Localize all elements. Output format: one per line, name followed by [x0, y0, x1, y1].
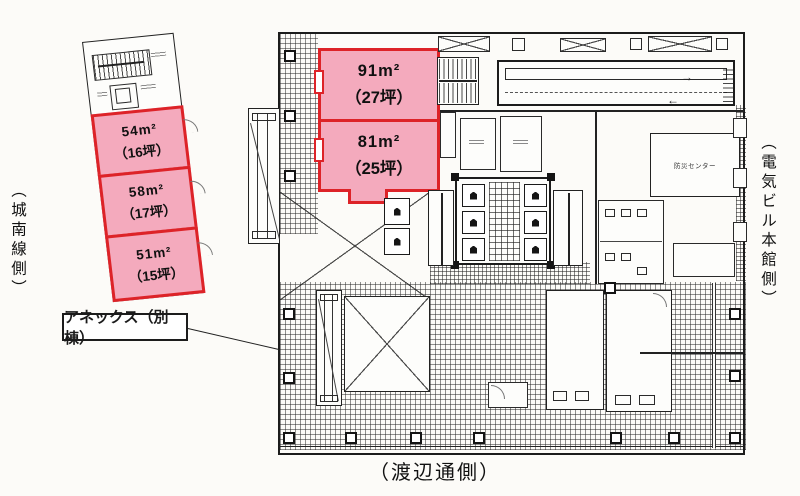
room-area-label: 54m²	[121, 121, 158, 139]
window-bay-notch	[314, 70, 324, 94]
west-core-staircase	[428, 190, 454, 266]
column-marker	[451, 173, 459, 181]
plaza-escalator	[316, 290, 342, 406]
elevator-cab	[462, 238, 485, 261]
side-escalator	[248, 108, 280, 244]
column-marker	[668, 432, 680, 444]
walkway-line	[640, 352, 744, 354]
flow-arrow-left-icon: ←	[667, 94, 679, 106]
plaza-room-a	[546, 290, 604, 410]
column-marker	[284, 50, 296, 62]
tiny-label-mark	[97, 91, 108, 97]
atrium-void	[344, 296, 430, 392]
door-arc	[190, 179, 206, 194]
floorplan-canvas: 54m² （16坪） 58m² （17坪） 51m² （15坪） アネックス（別…	[0, 0, 800, 496]
east-staircase	[673, 243, 735, 277]
column-marker	[610, 432, 622, 444]
restroom-block	[598, 200, 664, 284]
window-bay-notch	[314, 138, 324, 162]
annex-label-text: アネックス（別棟）	[64, 306, 186, 348]
wall-line	[595, 110, 597, 284]
plaza-room-b	[606, 290, 672, 412]
elevator-lobby	[489, 182, 520, 261]
side-label-jonan: （城南線側）	[6, 182, 28, 352]
service-room	[500, 116, 542, 172]
annex-elevator	[109, 83, 139, 111]
louver-grille	[723, 66, 733, 102]
room-bottom-tab	[348, 189, 388, 204]
service-elevator	[384, 198, 410, 225]
rooftop-unit	[438, 36, 490, 52]
expansion-joint	[712, 283, 716, 448]
tiny-label-mark	[140, 83, 156, 89]
elevator-cab	[462, 211, 485, 234]
column-marker	[729, 432, 741, 444]
elevator-cab	[462, 184, 485, 207]
tiny-label-mark	[151, 51, 167, 57]
rooftop-unit	[560, 38, 606, 52]
side-label-watanabe-dori: （渡辺通側）	[335, 456, 535, 485]
column-marker	[729, 308, 741, 320]
elevator-core	[455, 177, 551, 265]
column-marker	[283, 372, 295, 384]
side-label-denki-building: （電気ビル本館側）	[756, 134, 778, 354]
column-marker	[284, 110, 296, 122]
door-arc	[183, 118, 199, 133]
east-core-staircase	[553, 190, 583, 266]
annex-building: 54m² （16坪） 58m² （17坪） 51m² （15坪）	[82, 33, 204, 302]
column-marker	[410, 432, 422, 444]
shaft-box	[512, 38, 525, 51]
elevator-cab	[524, 184, 547, 207]
elevator-cab	[524, 238, 547, 261]
room-tsubo-label: （17坪）	[120, 198, 178, 223]
column-marker	[473, 432, 485, 444]
flow-arrow-right-icon: →	[681, 71, 693, 83]
room-area-label: 51m²	[135, 244, 172, 262]
shaft-box	[733, 222, 747, 242]
column-marker	[283, 308, 295, 320]
room-tsubo-label: （16坪）	[113, 138, 171, 163]
column-marker	[604, 282, 616, 294]
shaft-box	[733, 118, 747, 138]
machine-room: → ←	[497, 60, 735, 106]
column-marker	[729, 370, 741, 382]
shaft-box	[716, 38, 728, 50]
wall-line	[440, 110, 744, 112]
column-marker	[547, 173, 555, 181]
shaft-box	[630, 38, 642, 50]
service-room	[460, 118, 496, 170]
annex-leader-line	[188, 328, 280, 350]
column-marker	[284, 170, 296, 182]
annex-label: アネックス（別棟）	[62, 313, 188, 341]
main-room-81: 81m² （25坪）	[318, 119, 440, 192]
plaza-kiosk	[488, 382, 528, 408]
north-staircase	[437, 57, 479, 105]
rooftop-unit	[648, 36, 712, 52]
elevator-cab	[524, 211, 547, 234]
door-arc	[197, 241, 213, 256]
plaza-edge-line	[279, 446, 744, 447]
annex-room-51: 51m² （15坪）	[105, 226, 205, 302]
service-elevator	[384, 228, 410, 255]
room-tsubo-label: （15坪）	[127, 260, 185, 285]
room-area-label: 58m²	[128, 182, 165, 200]
room-tsubo-label: （27坪）	[345, 84, 413, 108]
disaster-center-room: 防災センター	[650, 133, 740, 197]
room-area-label: 91m²	[358, 62, 401, 81]
annex-elevator-cab	[115, 87, 132, 103]
disaster-center-label: 防災センター	[674, 160, 716, 170]
room-tsubo-label: （25坪）	[345, 155, 413, 179]
shaft-box	[733, 168, 747, 188]
main-room-91: 91m² （27坪）	[318, 48, 440, 122]
column-marker	[345, 432, 357, 444]
duct-shaft	[440, 112, 456, 158]
room-area-label: 81m²	[358, 133, 401, 152]
column-marker	[283, 432, 295, 444]
